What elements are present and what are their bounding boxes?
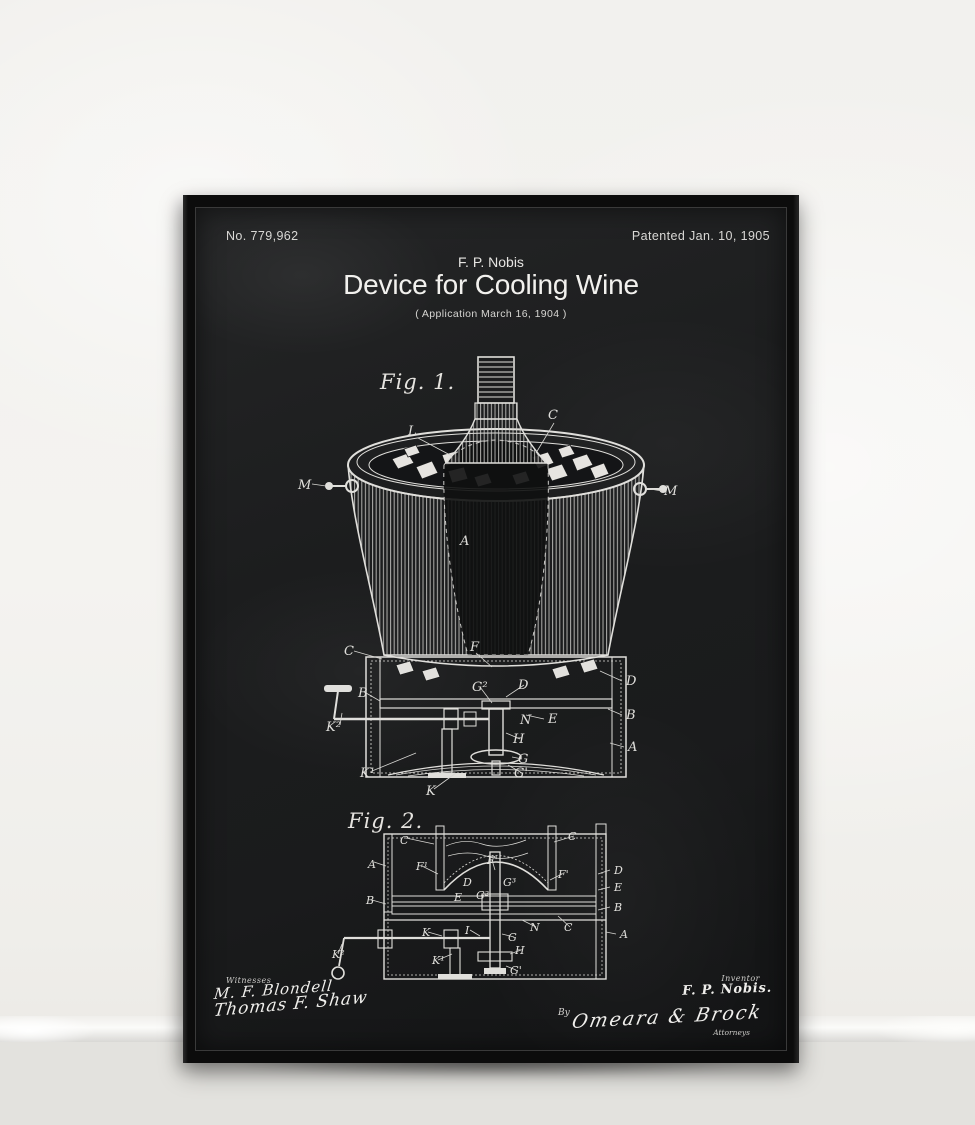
svg-text:E: E	[613, 881, 622, 894]
svg-text:B: B	[365, 894, 374, 907]
inventor-block: Inventor F. P. Nobis. By Omeara & Brock …	[522, 974, 772, 1036]
svg-text:G: G	[508, 931, 517, 944]
svg-text:E: E	[547, 712, 558, 727]
attorneys-label: Attorneys	[713, 1028, 750, 1037]
figure1-drawing: Fig. 1.	[296, 353, 696, 805]
patent-poster: No. 779,962 Patented Jan. 10, 1905 F. P.…	[196, 208, 786, 1050]
svg-text:F': F'	[557, 868, 569, 881]
svg-text:K²: K²	[325, 720, 341, 735]
svg-text:C: C	[564, 921, 573, 934]
svg-text:A: A	[627, 740, 637, 755]
svg-text:A: A	[459, 534, 469, 549]
svg-text:F': F'	[486, 854, 498, 867]
base-mechanism	[324, 655, 626, 778]
figure2-part-labels: CCAF¹F'F'DG³EG²DEBBNCKIGHK¹K²G'A	[331, 830, 628, 977]
figure1-label: Fig. 1.	[379, 370, 455, 394]
patent-title: Device for Cooling Wine	[196, 269, 786, 301]
bottle-neck	[475, 357, 517, 419]
svg-text:C: C	[400, 834, 409, 847]
by-label: By	[558, 1008, 570, 1018]
svg-text:N: N	[529, 921, 540, 934]
svg-text:A: A	[619, 928, 628, 941]
svg-text:C: C	[344, 644, 354, 659]
attorney-row: By Omeara & Brock Attorneys	[522, 1006, 772, 1036]
svg-text:A: A	[367, 858, 376, 871]
svg-text:M: M	[297, 478, 312, 493]
witnesses-block: Witnesses M. F. Blondell Thomas F. Shaw	[214, 976, 434, 1021]
svg-text:K: K	[425, 784, 437, 799]
svg-text:E: E	[453, 891, 462, 904]
svg-text:K¹: K¹	[431, 954, 445, 967]
svg-text:D: D	[613, 864, 623, 877]
svg-text:N: N	[519, 713, 532, 728]
svg-text:G': G'	[510, 964, 522, 977]
application-line: ( Application March 16, 1904 )	[196, 308, 786, 320]
svg-text:L: L	[407, 424, 417, 439]
svg-text:B: B	[357, 686, 368, 701]
inventor-signature: F. P. Nobis.	[522, 981, 772, 1005]
figure2-leader-lines	[338, 836, 616, 970]
svg-text:G²: G²	[476, 889, 489, 902]
svg-text:D: D	[462, 876, 472, 889]
svg-text:G': G'	[514, 766, 528, 781]
svg-text:H: H	[514, 944, 525, 957]
figure2-label: Fig. 2.	[347, 809, 423, 833]
svg-text:B: B	[613, 901, 622, 914]
poster-frame: No. 779,962 Patented Jan. 10, 1905 F. P.…	[183, 195, 799, 1063]
svg-text:F: F	[469, 640, 480, 655]
inventor-name: F. P. Nobis	[196, 254, 786, 270]
svg-text:H: H	[512, 732, 525, 747]
scene: No. 779,962 Patented Jan. 10, 1905 F. P.…	[0, 0, 975, 1125]
svg-text:I: I	[464, 924, 470, 937]
svg-text:G: G	[518, 752, 528, 767]
svg-text:M: M	[663, 484, 678, 499]
svg-text:C: C	[568, 830, 577, 843]
bottle-shoulder	[446, 419, 546, 463]
svg-text:K: K	[421, 926, 431, 939]
patent-number: No. 779,962	[226, 229, 299, 243]
svg-text:C: C	[548, 408, 558, 423]
figure2-drawing: Fig. 2.	[326, 804, 668, 996]
svg-text:F¹: F¹	[415, 860, 428, 873]
patented-date: Patented Jan. 10, 1905	[632, 229, 770, 243]
svg-text:D: D	[517, 678, 529, 693]
svg-text:K¹: K¹	[359, 766, 375, 781]
svg-text:G³: G³	[503, 876, 516, 889]
svg-text:B: B	[625, 708, 636, 723]
svg-text:D: D	[625, 674, 637, 689]
svg-text:K²: K²	[331, 948, 345, 961]
svg-text:G²: G²	[472, 680, 488, 695]
